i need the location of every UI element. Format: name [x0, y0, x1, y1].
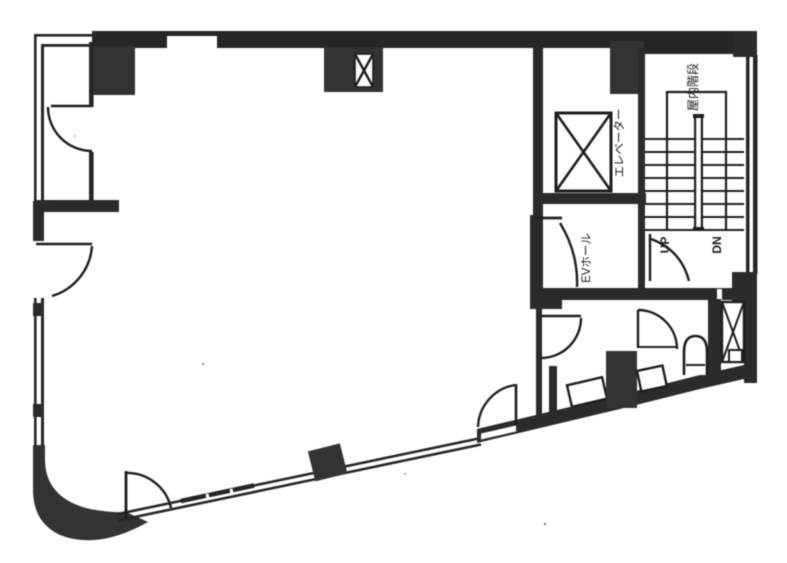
svg-text:エレベーター: エレベーター	[613, 109, 626, 178]
svg-text:UP: UP	[658, 237, 672, 254]
svg-text:EVホール: EVホール	[580, 233, 593, 283]
svg-text:DN: DN	[710, 236, 724, 253]
svg-text:屋内階段: 屋内階段	[685, 63, 700, 111]
